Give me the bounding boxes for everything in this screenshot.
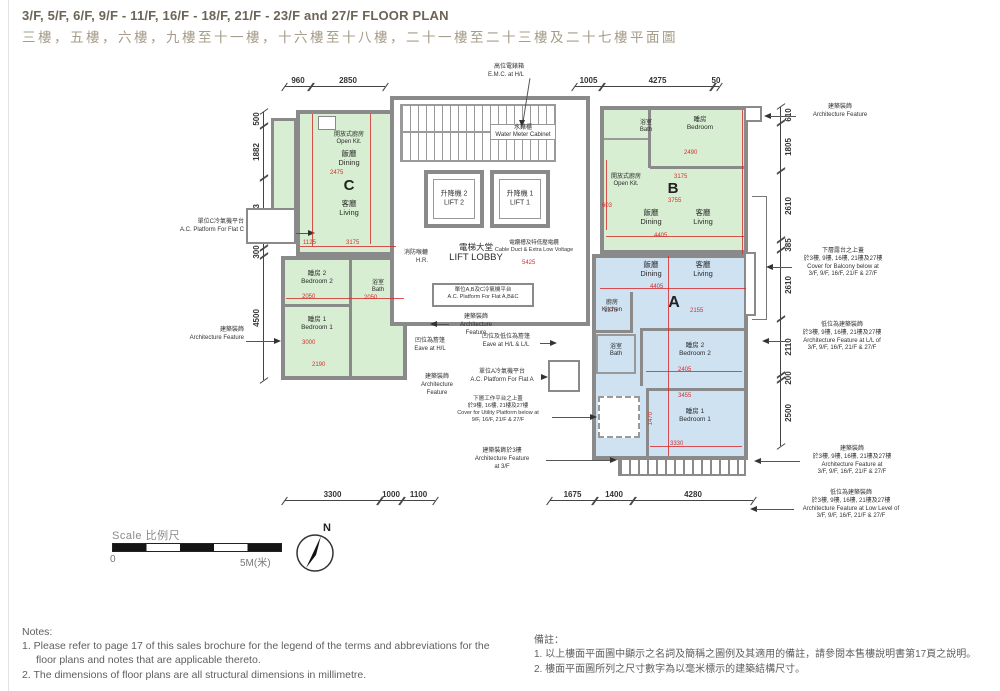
annotation-architecture-feature-ll: 低位為建築裝飾於3樓, 9樓, 16樓, 21樓及27樓Architecture… — [790, 322, 894, 353]
room-label-a-bath: 浴室Bath — [600, 344, 632, 358]
annotation-ac-platform-c: 單位C冷氣機平台A.C. Platform For Flat C — [118, 219, 244, 235]
leader-line — [246, 341, 276, 342]
wall — [630, 292, 633, 332]
dim-top-right-50: 50 — [713, 86, 719, 87]
wall — [640, 328, 744, 331]
annotation-balcony-cover: 下層露台之上蓋於3樓, 9樓, 16樓, 21樓及27樓Cover for Ba… — [794, 248, 892, 279]
arrow-right-icon — [610, 457, 617, 463]
ac-platform-abc: 單位A,B及C冷氣機平台A.C. Platform For Flat A,B&C — [432, 283, 534, 307]
dim-left-1882: 1882 — [263, 126, 264, 178]
floor-plan-sheet: 3/F, 5/F, 6/F, 9/F - 11/F, 16/F - 18/F, … — [0, 0, 1000, 691]
red-dim: 3755 — [668, 198, 681, 204]
wall — [604, 138, 648, 140]
dim-bottom-4280: 4280 — [633, 500, 753, 501]
leader-line — [756, 509, 794, 510]
red-dim-line — [646, 371, 742, 372]
dim-right-2610b: 2610 — [780, 250, 781, 319]
lift-1: 升降機 1LIFT 1 — [490, 170, 550, 228]
scale-bar — [112, 543, 282, 552]
red-dim-line — [650, 446, 742, 447]
flat-label-a: A — [662, 294, 686, 312]
annotation-architecture-feature-3f: 建築裝飾於3樓Architecture Featureat 3/F — [460, 448, 544, 471]
red-dim-line — [286, 298, 404, 299]
dim-right-2110: 2110 — [780, 319, 781, 375]
annotation-utility-cover: 下層工作平台之上蓋於9樓, 16樓, 21樓及27樓Cover for Util… — [446, 396, 550, 425]
dim-bottom-3300: 3300 — [285, 500, 380, 501]
hose-reel-label: 消防喉轆H.R. — [378, 250, 428, 266]
arrow-right-icon — [274, 338, 281, 344]
lift-1-label: 升降機 1LIFT 1 — [494, 190, 546, 208]
wall — [349, 260, 352, 376]
room-label-c-bedroom2: 睡房 2Bedroom 2 — [286, 270, 348, 286]
flat-label-c: C — [338, 177, 360, 194]
cable-duct-label: 電纜槽及特低壓電纜Cable Duct & Extra Low Voltage — [486, 240, 582, 254]
notes-zh-item-2: 2. 樓面平面圖所列之尺寸數字為以毫米標示的建築結構尺寸。 — [534, 663, 980, 676]
ac-platform-a — [548, 360, 580, 392]
red-dim: 3000 — [302, 340, 315, 346]
red-dim-line — [668, 256, 669, 456]
red-dim-line — [606, 160, 607, 230]
page-title-chinese: 三樓，五樓，六樓，九樓至十一樓，十六樓至十八樓，二十一樓至二十三樓及二十七樓平面… — [22, 26, 678, 46]
emc-annotation: 高位電錶箱E.M.C. at H/L — [448, 64, 524, 80]
leader-line — [770, 116, 796, 117]
red-dim: 3455 — [678, 393, 691, 399]
annotation-eave-hl: 凹位為簷篷Eave at H/L — [404, 338, 456, 354]
annotation-ac-platform-a: 單位A冷氣機平台A.C. Platform For Flat A — [462, 369, 542, 385]
room-label-a-bedroom1: 睡房 1Bedroom 1 — [658, 408, 732, 424]
wall — [640, 328, 643, 386]
dim-bottom-1675: 1675 — [550, 500, 595, 501]
wall — [650, 166, 744, 169]
scale-caption: Scale 比例尺 — [112, 527, 180, 543]
leader-line — [546, 460, 612, 461]
annotation-eave-hl-ll: 凹位及低位為簷篷Eave at H/L & L/L — [472, 334, 540, 350]
page-title: 3/F, 5/F, 6/F, 9/F - 11/F, 16/F - 18/F, … — [22, 8, 449, 23]
leader-line — [437, 324, 449, 325]
leader-line — [552, 417, 592, 418]
wall — [646, 388, 744, 391]
room-label-c-openkit: 開放式廚房Open Kit. — [316, 132, 382, 146]
arrow-left-icon — [430, 321, 437, 327]
dim-left-4500: 4500 — [263, 256, 264, 380]
room-label-b-openkit: 開放式廚房Open Kit. — [602, 174, 650, 188]
leader-line — [772, 267, 792, 268]
room-label-c-bedroom1: 睡房 1Bedroom 1 — [286, 316, 348, 332]
lift-2-label: 升降機 2LIFT 2 — [428, 190, 480, 208]
notes-en-title: Notes: — [22, 626, 500, 638]
red-dim: 3175 — [674, 174, 687, 180]
red-dim: 2190 — [312, 362, 325, 368]
room-label-b-dining: 飯廳Dining — [628, 208, 674, 226]
balcony-edge — [618, 458, 746, 476]
room-label-b-bedroom: 睡房Bedroom — [664, 116, 736, 132]
leader-line — [768, 341, 788, 342]
leader-line — [760, 461, 800, 462]
utility-platform-cover — [598, 396, 640, 438]
red-dim: 1470 — [648, 412, 654, 425]
ac-platform-abc-label: 單位A,B及C冷氣機平台A.C. Platform For Flat A,B&C — [434, 287, 532, 301]
room-label-a-living: 客廳Living — [680, 260, 726, 278]
emc-arrow-icon — [519, 120, 525, 127]
dim-bottom-1100: 1100 — [402, 500, 435, 501]
dim-top-right-1005: 1005 — [575, 86, 602, 87]
notes-en-item-1: 1. Please refer to page 17 of this sales… — [22, 640, 500, 667]
red-dim-line — [300, 246, 396, 247]
red-dim: 4405 — [650, 284, 663, 290]
dim-bottom-1400: 1400 — [595, 500, 633, 501]
red-dim: 5425 — [522, 260, 535, 266]
flat-label-b: B — [662, 180, 684, 197]
scan-edge — [8, 0, 9, 691]
room-label-b-bath: 浴室Bath — [628, 120, 664, 134]
annotation-architecture-feature-low-level: 低位為建築裝飾於3樓, 9樓, 16樓, 21樓及27樓Architecture… — [796, 490, 906, 521]
dim-top-left-2850: 2850 — [311, 86, 385, 87]
notes-chinese: 備註： 1. 以上樓面平面圖中顯示之名詞及簡稱之圖例及其適用的備註，請參閱本售樓… — [534, 631, 980, 676]
ac-platform-c — [246, 208, 296, 244]
scale-max: 5M(米) — [240, 554, 271, 569]
svg-text:N: N — [323, 522, 331, 534]
red-dim-line — [606, 236, 744, 237]
annotation-architecture-feature-floors: 建築裝飾於3樓, 9樓, 16樓, 21樓及27樓Architecture Fe… — [802, 446, 902, 477]
red-dim-line — [600, 288, 746, 289]
notes-zh-title: 備註： — [534, 631, 980, 646]
wall — [648, 110, 651, 168]
wall — [594, 330, 633, 333]
annotation-architecture-feature-mid2: 建築裝飾ArchitectureFeature — [412, 374, 462, 397]
wall — [285, 304, 351, 307]
north-arrow-icon: N — [290, 518, 344, 576]
dim-right-1805: 1805 — [780, 123, 781, 171]
arrow-right-icon — [541, 374, 548, 380]
dim-right-2500: 2500 — [780, 380, 781, 446]
arrow-right-icon — [550, 340, 557, 346]
room-label-b-living: 客廳Living — [680, 208, 726, 226]
notes-zh-item-1: 1. 以上樓面平面圖中顯示之名詞及簡稱之圖例及其適用的備註，請參閱本售樓說明書第… — [534, 648, 980, 661]
red-dim: 603 — [602, 203, 612, 209]
annotation-architecture-feature-left: 建築裝飾Architecture Feature — [140, 327, 244, 343]
arrow-right-icon — [590, 414, 597, 420]
notes-english: Notes: 1. Please refer to page 17 of thi… — [22, 626, 500, 683]
red-dim-line — [370, 114, 371, 244]
red-dim-line — [742, 110, 743, 254]
red-dim: 2050 — [302, 294, 315, 300]
dim-top-left-960: 960 — [285, 86, 311, 87]
lift-2: 升降機 2LIFT 2 — [424, 170, 484, 228]
room-label-a-kitchen: 廚房Kitchen — [594, 300, 630, 314]
dim-right-2610a: 2610 — [780, 171, 781, 240]
kitchen-fixture — [318, 116, 336, 130]
red-dim: 2475 — [330, 170, 343, 176]
dim-top-right-4275: 4275 — [602, 86, 713, 87]
red-dim: 2155 — [690, 308, 703, 314]
room-label-a-bedroom2: 睡房 2Bedroom 2 — [658, 342, 732, 358]
notes-en-item-2: 2. The dimensions of floor plans are all… — [22, 669, 500, 683]
architecture-feature-strip — [744, 252, 756, 316]
architecture-feature-box — [744, 106, 762, 122]
scale-zero: 0 — [110, 554, 116, 565]
red-dim-line — [312, 114, 313, 246]
dim-bottom-1000: 1000 — [380, 500, 402, 501]
red-dim: 2405 — [678, 367, 691, 373]
red-dim: 2490 — [684, 150, 697, 156]
annotation-architecture-feature-top-right: 建築裝飾Architecture Feature — [798, 104, 882, 120]
